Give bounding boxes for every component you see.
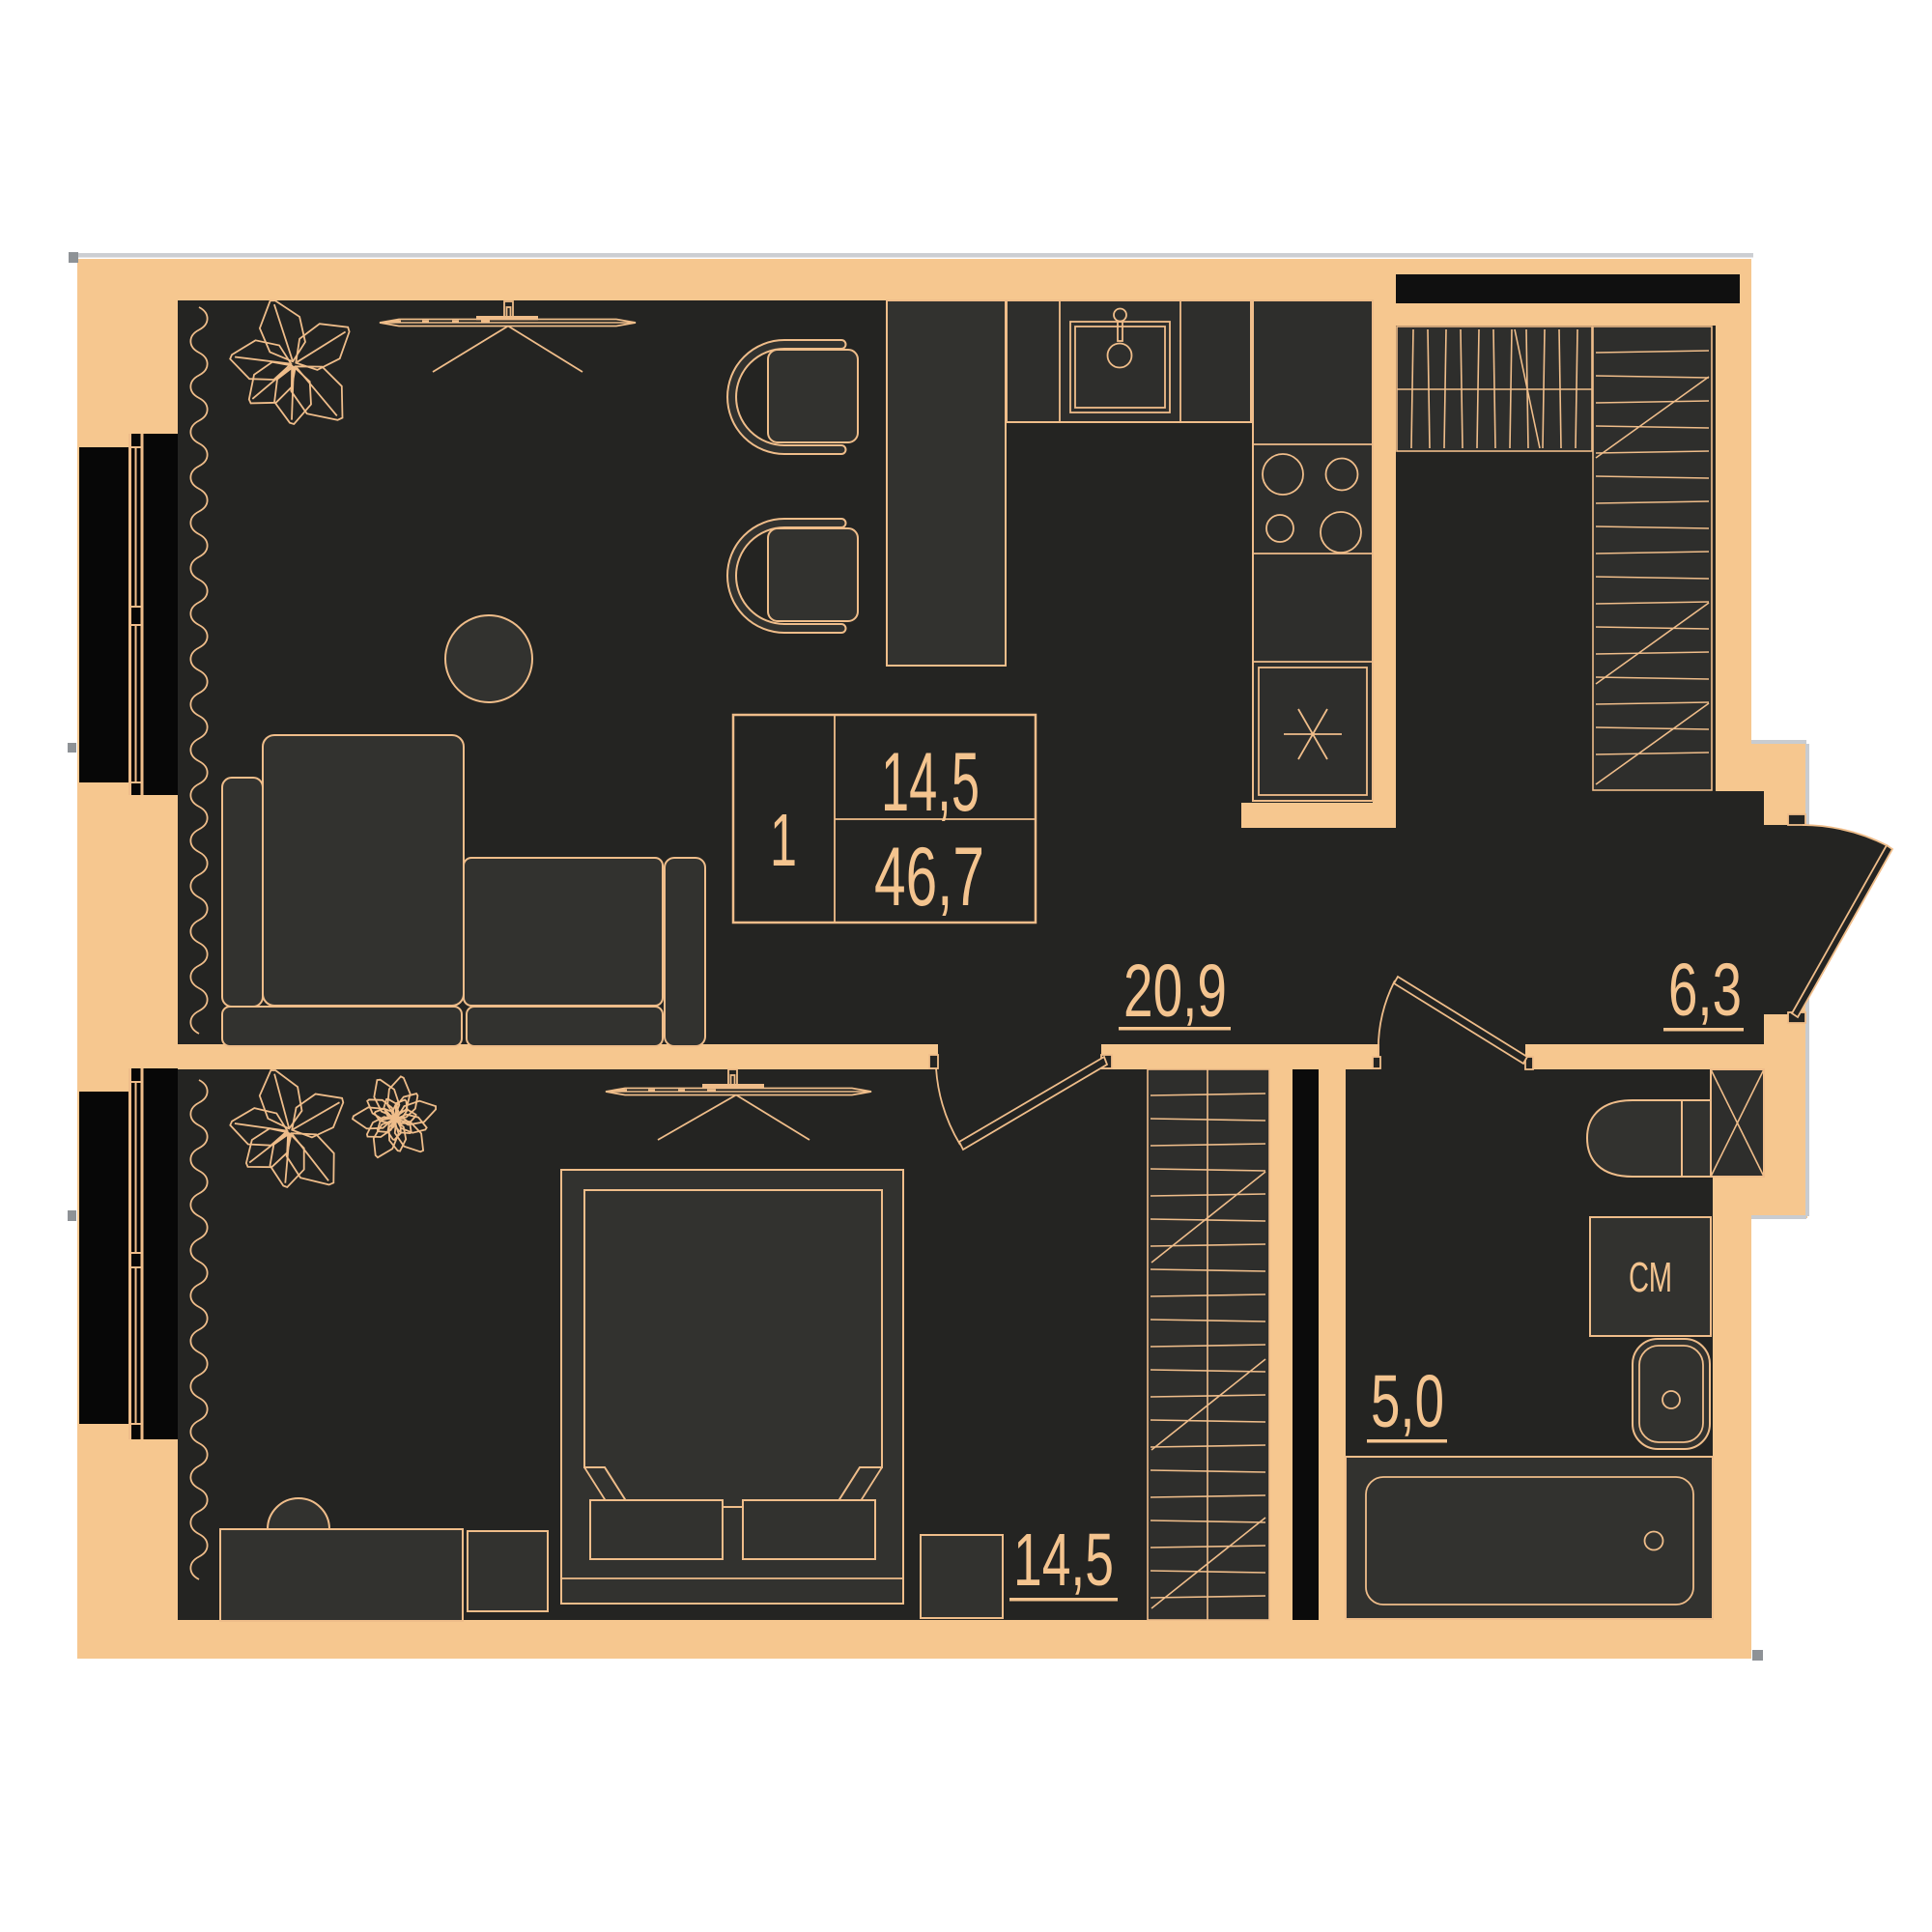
svg-text:14,5: 14,5 bbox=[1013, 1519, 1114, 1602]
svg-text:20,9: 20,9 bbox=[1123, 950, 1227, 1033]
svg-text:6,3: 6,3 bbox=[1668, 949, 1742, 1032]
svg-text:5,0: 5,0 bbox=[1371, 1360, 1444, 1443]
svg-text:1: 1 bbox=[770, 799, 797, 882]
svg-text:46,7: 46,7 bbox=[874, 831, 984, 923]
svg-text:14,5: 14,5 bbox=[881, 736, 980, 829]
svg-text:СМ: СМ bbox=[1629, 1254, 1672, 1301]
